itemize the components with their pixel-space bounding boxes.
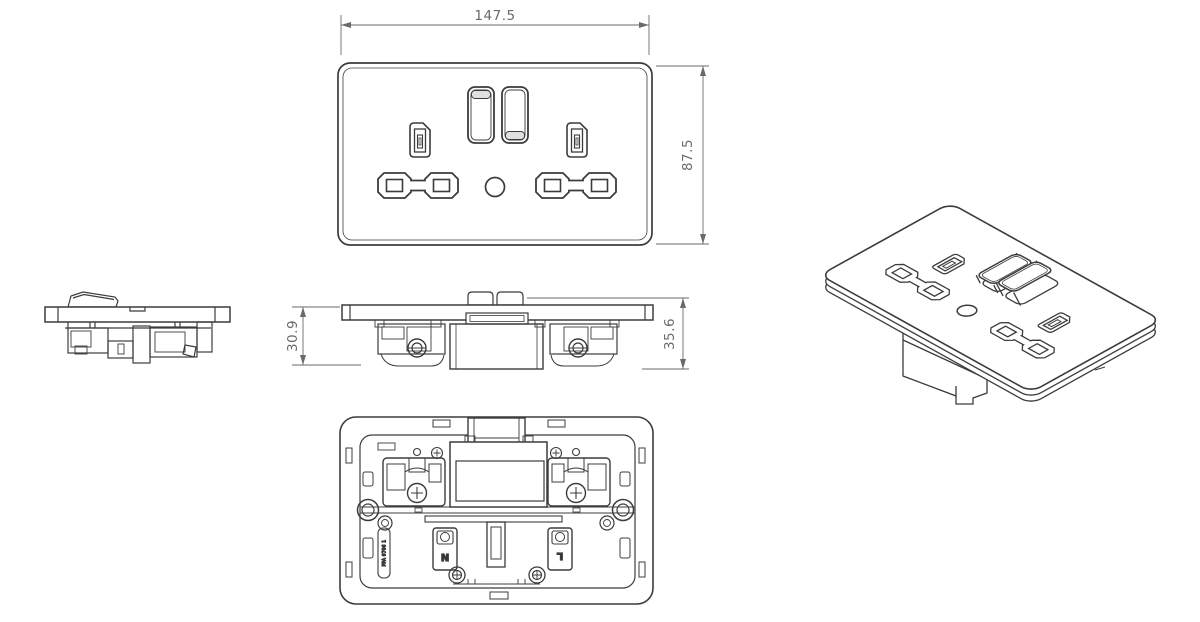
dimension-height-value: 87.5 [680,139,696,171]
rear-view: N L PPA 0706 1 [335,408,665,622]
rocker-bump-left [468,292,493,305]
dimension-height: 87.5 [656,66,709,244]
dimension-width-value: 147.5 [474,8,515,24]
rocker-bump-right [497,292,523,305]
faceplate-top [820,203,1161,392]
technical-drawing-canvas: 147.5 87.5 [0,0,1200,622]
front-view: 147.5 87.5 [330,5,725,257]
stamp-text: PPA 0706 1 [382,540,387,567]
dimension-width: 147.5 [341,8,649,55]
isometric-view [808,190,1200,430]
terminal-cluster-right [550,324,617,366]
faceplate-edge [45,307,230,322]
faceplate-front [338,63,652,245]
side-view-bottom: 30.9 35.6 [285,282,695,382]
dimension-overall-depth-value: 35.6 [662,318,678,350]
rocker-switch-left [468,87,494,143]
side-view-left [35,278,240,384]
rocker-switch-right [502,87,528,143]
center-module [450,324,543,369]
switch-module [450,442,547,507]
neutral-label: N [441,553,449,564]
live-label: L [556,550,563,561]
dimension-depth-value: 30.9 [285,320,301,352]
terminal-cluster-left [378,324,445,366]
center-dovetail [466,313,528,324]
